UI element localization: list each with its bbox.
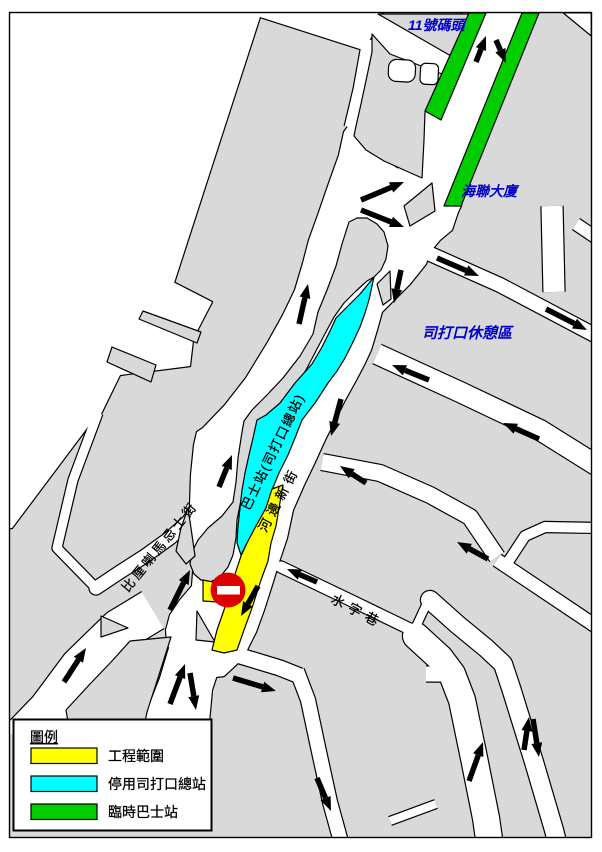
svg-text:圖例: 圖例	[30, 729, 58, 745]
svg-text:停用司打口總站: 停用司打口總站	[108, 776, 206, 792]
svg-text:司打口休憩區: 司打口休憩區	[422, 324, 514, 342]
svg-text:11號碼頭: 11號碼頭	[408, 17, 468, 33]
svg-text:海聯大廈: 海聯大廈	[461, 183, 520, 199]
svg-text:臨時巴士站: 臨時巴士站	[108, 804, 178, 820]
svg-text:工程範圍: 工程範圍	[108, 748, 164, 764]
